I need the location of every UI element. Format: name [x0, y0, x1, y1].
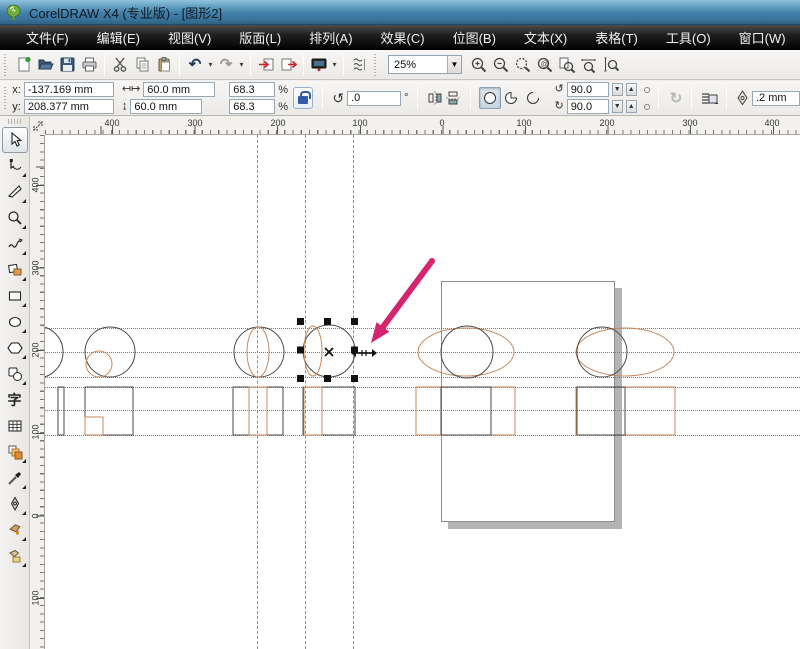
- vruler-label: 100: [31, 591, 41, 606]
- circle-3-lens[interactable]: [304, 326, 322, 376]
- rectangle-tool[interactable]: [2, 283, 28, 309]
- hruler-label: 300: [682, 118, 697, 128]
- rect-3[interactable]: [303, 387, 355, 435]
- hruler-label: 100: [352, 118, 367, 128]
- zoom-level-combo[interactable]: 25% ▼: [388, 55, 462, 74]
- vruler-label: 400: [31, 178, 41, 193]
- object-size-block: ↤↦ 60.0 mm ↨ 60.0 mm: [122, 82, 215, 114]
- interactive-fill-tool[interactable]: [2, 543, 28, 569]
- toolbar-grip[interactable]: [2, 54, 9, 76]
- hruler-label: 100: [516, 118, 531, 128]
- zoom-to-width-icon[interactable]: [578, 54, 600, 76]
- standard-toolbar: ↶ ▾ ↷ ▾ ▾ 25% ▼: [0, 50, 800, 80]
- hruler-label: 400: [104, 118, 119, 128]
- rect-2-inner[interactable]: [249, 387, 267, 435]
- zoom-to-page-icon[interactable]: [556, 54, 578, 76]
- undo-icon[interactable]: ↶: [184, 54, 206, 76]
- scale-x-field[interactable]: 68.3: [229, 82, 275, 97]
- propbar-separator: [322, 87, 323, 109]
- y-position-field[interactable]: 208.377 mm: [24, 99, 114, 114]
- smart-fill-tool[interactable]: [2, 257, 28, 283]
- circle-right-2[interactable]: [577, 327, 627, 377]
- toolbox-grip[interactable]: [8, 119, 22, 124]
- zoom-to-all-icon[interactable]: @: [534, 54, 556, 76]
- zoom-combo-dropdown-icon[interactable]: ▼: [447, 56, 461, 73]
- rect-right-2[interactable]: [577, 387, 625, 435]
- lock-icon: [298, 96, 308, 104]
- circle-2-lens[interactable]: [247, 327, 269, 377]
- launcher-dropdown-icon[interactable]: ▾: [330, 60, 339, 69]
- vruler-label: 200: [31, 343, 41, 358]
- propbar-separator: [658, 87, 659, 109]
- paste-icon[interactable]: [153, 54, 175, 76]
- cut-icon[interactable]: [109, 54, 131, 76]
- x-position-field[interactable]: -137.169 mm: [24, 82, 114, 97]
- rect-right-1-orange[interactable]: [416, 387, 515, 435]
- rect-2[interactable]: [233, 387, 283, 435]
- end-angle-field[interactable]: 90.0: [567, 99, 609, 114]
- menu-window[interactable]: 窗口(W): [725, 25, 800, 50]
- redo-dropdown-icon[interactable]: ▾: [237, 60, 246, 69]
- outline-width-icon: [733, 87, 752, 109]
- zoom-to-selection-icon[interactable]: [512, 54, 534, 76]
- import-icon[interactable]: [255, 54, 277, 76]
- annotation-arrow-shaft: [381, 261, 432, 330]
- scale-y-field[interactable]: 68.3: [229, 99, 275, 114]
- menu-tools[interactable]: 工具(O): [652, 25, 725, 50]
- ruler-ticks-major: [36, 135, 44, 649]
- circle-1[interactable]: [85, 327, 135, 377]
- percent-sign: %: [278, 84, 288, 96]
- title-bar: CorelDRAW X4 (专业版) - [图形2]: [0, 0, 800, 25]
- rotation-block: ↺ .0 °: [332, 91, 408, 106]
- selection-handle[interactable]: [297, 375, 304, 382]
- shape-tool[interactable]: [2, 153, 28, 179]
- mirror-vertical-icon[interactable]: [444, 87, 462, 109]
- rect-right-1[interactable]: [441, 387, 491, 435]
- toolbar-grip[interactable]: [372, 54, 379, 76]
- zoom-in-icon[interactable]: [468, 54, 490, 76]
- toolbar-separator: [250, 54, 251, 76]
- rotate-icon: ↺: [332, 91, 344, 105]
- freehand-tool[interactable]: [2, 231, 28, 257]
- new-icon[interactable]: [12, 54, 34, 76]
- circle-1-inner[interactable]: [86, 351, 112, 377]
- drawing-canvas[interactable]: [45, 135, 800, 649]
- partial-circle[interactable]: [45, 326, 63, 378]
- width-field[interactable]: 60.0 mm: [143, 82, 215, 97]
- propbar-separator: [417, 87, 418, 109]
- height-icon: ↨: [122, 101, 128, 112]
- angle-down-button[interactable]: ▼: [612, 83, 623, 96]
- circle-right-1[interactable]: [441, 326, 493, 378]
- menu-file[interactable]: 文件(F): [12, 25, 83, 50]
- selection-center-mark[interactable]: [325, 348, 333, 356]
- hruler-label: 400: [764, 118, 779, 128]
- y-label: y:: [11, 101, 21, 113]
- basic-shapes-tool[interactable]: [2, 361, 28, 387]
- text-tool[interactable]: 字: [2, 387, 28, 413]
- ruler-origin[interactable]: [30, 116, 45, 135]
- angle-indicator: [644, 104, 650, 110]
- angle-up-button[interactable]: ▲: [626, 83, 637, 96]
- undo-dropdown-icon[interactable]: ▾: [206, 60, 215, 69]
- redo-icon[interactable]: ↷: [215, 54, 237, 76]
- polygon-tool[interactable]: [2, 335, 28, 361]
- toolbar-separator: [303, 54, 304, 76]
- vertical-ruler[interactable]: 4003002001000100: [30, 135, 45, 649]
- save-icon[interactable]: [56, 54, 78, 76]
- table-tool[interactable]: [2, 413, 28, 439]
- hruler-label: 0: [439, 118, 444, 128]
- selection-handle[interactable]: [324, 375, 331, 382]
- change-direction-button[interactable]: ↻: [667, 87, 686, 109]
- export-icon[interactable]: [277, 54, 299, 76]
- propbar-grip[interactable]: [2, 87, 8, 109]
- arc-mode-button[interactable]: [522, 87, 544, 109]
- menu-bitmaps[interactable]: 位图(B): [439, 25, 510, 50]
- object-position-block: x: -137.169 mm y: 208.377 mm: [11, 82, 114, 114]
- selection-handle[interactable]: [324, 318, 331, 325]
- svg-text:@: @: [541, 59, 549, 68]
- eyedropper-tool[interactable]: [2, 465, 28, 491]
- ellipse-right-1[interactable]: [418, 328, 514, 376]
- ellipse-mode-button[interactable]: [479, 87, 501, 109]
- crop-tool[interactable]: [2, 179, 28, 205]
- hruler-label: 200: [599, 118, 614, 128]
- propbar-separator: [691, 87, 692, 109]
- rect-1-inner[interactable]: [85, 417, 103, 435]
- thin-bar[interactable]: [58, 387, 64, 435]
- selection-handle[interactable]: [297, 318, 304, 325]
- angle-indicator: [644, 87, 650, 93]
- copy-icon[interactable]: [131, 54, 153, 76]
- propbar-separator: [470, 87, 471, 109]
- menu-bar: 文件(F) 编辑(E) 视图(V) 版面(L) 排列(A) 效果(C) 位图(B…: [0, 25, 800, 50]
- zoom-to-height-icon[interactable]: [600, 54, 622, 76]
- width-icon: ↤↦: [122, 84, 140, 95]
- degree-sign: °: [404, 92, 408, 104]
- view-options-icon[interactable]: [348, 54, 370, 76]
- zoom-tool[interactable]: [2, 205, 28, 231]
- selection-handle[interactable]: [351, 318, 358, 325]
- fill-tool[interactable]: [2, 517, 28, 543]
- menu-text[interactable]: 文本(X): [510, 25, 581, 50]
- pick-tool[interactable]: [2, 127, 28, 153]
- print-icon[interactable]: [78, 54, 100, 76]
- text-wrap-button[interactable]: [698, 87, 720, 109]
- open-icon[interactable]: [34, 54, 56, 76]
- window-title: CorelDRAW X4 (专业版) - [图形2]: [29, 3, 222, 22]
- menu-view[interactable]: 视图(V): [154, 25, 225, 50]
- selection-handle[interactable]: [297, 347, 304, 354]
- coreldraw-window: CorelDRAW X4 (专业版) - [图形2] 文件(F) 编辑(E) 视…: [0, 0, 800, 649]
- propbar-separator: [726, 87, 727, 109]
- blend-tool[interactable]: [2, 439, 28, 465]
- pie-mode-button[interactable]: [501, 87, 523, 109]
- menu-arrange[interactable]: 排列(A): [295, 25, 366, 50]
- zoom-out-icon[interactable]: [490, 54, 512, 76]
- outline-width-field[interactable]: .2 mm: [752, 91, 800, 106]
- percent-sign: %: [278, 101, 288, 113]
- vruler-label: 300: [31, 261, 41, 276]
- vruler-label: 0: [31, 509, 41, 524]
- lock-ratio-button[interactable]: [293, 87, 313, 109]
- menu-effects[interactable]: 效果(C): [367, 25, 439, 50]
- angle-up-button[interactable]: ▲: [626, 100, 637, 113]
- menu-table[interactable]: 表格(T): [581, 25, 652, 50]
- property-bar: x: -137.169 mm y: 208.377 mm ↤↦ 60.0 mm …: [0, 81, 800, 116]
- start-angle-icon: ↺: [554, 84, 563, 95]
- hruler-label: 300: [187, 118, 202, 128]
- end-angle-icon: ↻: [554, 101, 563, 112]
- ellipse-tool[interactable]: [2, 309, 28, 335]
- mirror-horizontal-icon[interactable]: [426, 87, 444, 109]
- resize-cursor-right: [372, 349, 377, 357]
- direction-icon: ↻: [670, 89, 683, 107]
- vruler-label: 100: [31, 425, 41, 440]
- coreldraw-logo-icon: [5, 4, 22, 21]
- toolbar-separator: [179, 54, 180, 76]
- hruler-label: 200: [270, 118, 285, 128]
- height-field[interactable]: 60.0 mm: [130, 99, 202, 114]
- rect-3-inner[interactable]: [304, 387, 322, 435]
- arc-angles-block: ↺ 90.0 ▼ ▲ ↻ 90.0 ▼ ▲: [554, 82, 649, 114]
- rect-1[interactable]: [85, 387, 133, 435]
- menu-layout[interactable]: 版面(L): [225, 25, 295, 50]
- angle-down-button[interactable]: ▼: [612, 100, 623, 113]
- circle-2[interactable]: [234, 327, 284, 377]
- selection-handle[interactable]: [351, 375, 358, 382]
- outline-pen-tool[interactable]: [2, 491, 28, 517]
- start-angle-field[interactable]: 90.0: [567, 82, 609, 97]
- toolbox: 字: [0, 116, 30, 649]
- shapes-layer: [45, 135, 800, 649]
- rotation-field[interactable]: .0: [347, 91, 401, 106]
- menu-edit[interactable]: 编辑(E): [83, 25, 154, 50]
- application-launcher-icon[interactable]: [308, 54, 330, 76]
- x-label: x:: [11, 84, 21, 96]
- ruler-origin-icon: [32, 120, 44, 132]
- horizontal-ruler[interactable]: 4003002001000100200300400: [45, 116, 800, 135]
- zoom-level-value[interactable]: 25%: [389, 59, 447, 71]
- toolbar-separator: [343, 54, 344, 76]
- toolbar-separator: [104, 54, 105, 76]
- scale-block: 68.3 % 68.3 %: [229, 82, 288, 114]
- ellipse-right-2[interactable]: [576, 328, 674, 376]
